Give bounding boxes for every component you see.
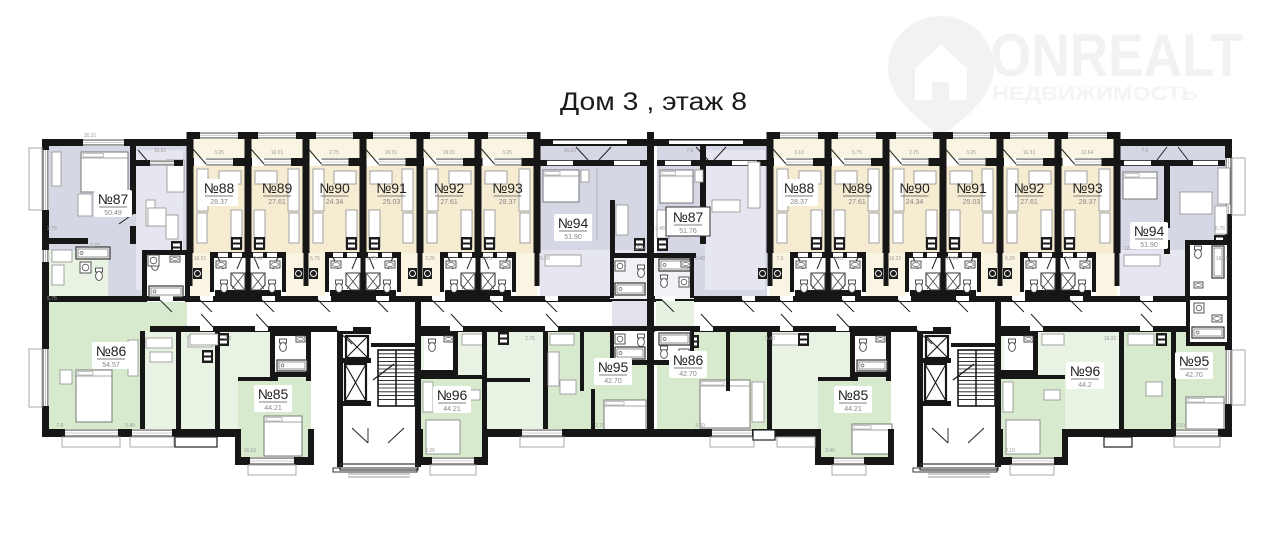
svg-text:№92: №92 <box>1014 180 1045 196</box>
svg-text:№89: №89 <box>842 180 873 196</box>
svg-text:3.25: 3.25 <box>502 150 512 156</box>
svg-text:5.75: 5.75 <box>852 150 862 156</box>
svg-text:3.40: 3.40 <box>125 423 135 429</box>
svg-text:44.2: 44.2 <box>1078 382 1092 389</box>
svg-text:5.28: 5.28 <box>540 256 550 262</box>
svg-text:№96: №96 <box>437 387 468 403</box>
svg-text:№88: №88 <box>784 180 815 196</box>
svg-text:№93: №93 <box>492 180 523 196</box>
svg-text:№91: №91 <box>376 180 407 196</box>
svg-text:27.61: 27.61 <box>268 199 286 206</box>
svg-text:№95: №95 <box>598 359 629 375</box>
svg-text:51.90: 51.90 <box>1140 242 1158 249</box>
svg-text:№87: №87 <box>673 209 704 225</box>
svg-text:2.75: 2.75 <box>367 256 377 262</box>
svg-text:25.03: 25.03 <box>963 199 981 206</box>
svg-text:5.75: 5.75 <box>1215 226 1225 232</box>
svg-text:№93: №93 <box>1072 180 1103 196</box>
svg-text:№94: №94 <box>1134 223 1165 239</box>
svg-text:№91: №91 <box>956 180 987 196</box>
svg-text:27.61: 27.61 <box>848 199 866 206</box>
svg-text:№86: №86 <box>673 352 704 368</box>
svg-text:25.03: 25.03 <box>383 199 401 206</box>
svg-text:54.57: 54.57 <box>102 362 120 369</box>
svg-text:3.10: 3.10 <box>1175 423 1185 429</box>
svg-text:НЕДВИЖИМОСТЬ: НЕДВИЖИМОСТЬ <box>992 84 1198 105</box>
svg-text:7.6: 7.6 <box>1142 148 1149 154</box>
svg-text:№90: №90 <box>899 180 930 196</box>
svg-text:ONREALT: ONREALT <box>990 22 1243 89</box>
svg-text:16.31: 16.31 <box>889 256 902 262</box>
svg-text:28.37: 28.37 <box>499 199 517 206</box>
svg-text:44.21: 44.21 <box>264 405 282 412</box>
svg-text:3.25: 3.25 <box>966 150 976 156</box>
svg-text:16.01: 16.01 <box>244 448 257 454</box>
svg-text:3.40: 3.40 <box>695 423 705 429</box>
svg-text:16.31: 16.31 <box>385 150 398 156</box>
svg-text:2.75: 2.75 <box>90 243 100 249</box>
svg-text:3.10: 3.10 <box>794 150 804 156</box>
svg-text:№86: №86 <box>96 343 127 359</box>
svg-text:16.31: 16.31 <box>1023 150 1036 156</box>
svg-text:№89: №89 <box>262 180 293 196</box>
svg-text:51.76: 51.76 <box>679 228 697 235</box>
svg-text:7.6: 7.6 <box>57 423 64 429</box>
svg-text:№88: №88 <box>204 180 235 196</box>
svg-text:51.90: 51.90 <box>564 234 582 241</box>
svg-text:2.75: 2.75 <box>47 226 57 232</box>
svg-text:№94: №94 <box>558 215 589 231</box>
svg-text:16.31: 16.31 <box>443 150 456 156</box>
svg-text:42.70: 42.70 <box>604 378 622 385</box>
svg-text:16.31: 16.31 <box>1216 256 1229 262</box>
svg-text:44.21: 44.21 <box>443 406 461 413</box>
svg-text:3.40: 3.40 <box>765 336 775 342</box>
svg-text:3.25: 3.25 <box>425 448 435 454</box>
svg-text:3.40: 3.40 <box>695 256 705 262</box>
svg-text:24.34: 24.34 <box>326 199 344 206</box>
svg-text:12.64: 12.64 <box>634 246 647 252</box>
svg-text:2.42: 2.42 <box>253 256 263 262</box>
svg-text:3.25: 3.25 <box>214 150 224 156</box>
svg-text:№95: №95 <box>1179 353 1210 369</box>
svg-text:12.64: 12.64 <box>1081 150 1094 156</box>
svg-text:5.75: 5.75 <box>310 256 320 262</box>
svg-text:16.01: 16.01 <box>564 148 577 154</box>
svg-text:Дом 3 , этаж 8: Дом 3 , этаж 8 <box>560 88 747 116</box>
svg-text:50.49: 50.49 <box>104 210 122 217</box>
svg-text:5.28: 5.28 <box>1005 256 1015 262</box>
svg-text:4.15: 4.15 <box>833 256 843 262</box>
svg-text:5.75: 5.75 <box>47 296 57 302</box>
svg-text:7.6: 7.6 <box>687 148 694 154</box>
svg-text:2.75: 2.75 <box>595 423 605 429</box>
svg-text:24.34: 24.34 <box>906 199 924 206</box>
svg-text:16.31: 16.31 <box>84 133 97 139</box>
svg-text:42.70: 42.70 <box>1185 372 1203 379</box>
svg-text:16.31: 16.31 <box>1104 336 1117 342</box>
svg-text:7.6: 7.6 <box>1065 256 1072 262</box>
svg-text:16.31: 16.31 <box>194 256 207 262</box>
svg-text:2.75: 2.75 <box>329 150 339 156</box>
svg-text:№96: №96 <box>1070 363 1101 379</box>
svg-text:№87: №87 <box>98 191 129 207</box>
svg-text:12.64: 12.64 <box>946 256 959 262</box>
svg-text:3.40: 3.40 <box>825 448 835 454</box>
svg-text:№92: №92 <box>434 180 465 196</box>
svg-text:7.6: 7.6 <box>225 336 232 342</box>
svg-text:3.25: 3.25 <box>425 256 435 262</box>
svg-text:27.61: 27.61 <box>440 199 458 206</box>
svg-text:№90: №90 <box>319 180 350 196</box>
svg-text:28.37: 28.37 <box>210 199 228 206</box>
svg-text:44.21: 44.21 <box>844 406 862 413</box>
svg-text:16.01: 16.01 <box>271 150 284 156</box>
svg-text:№85: №85 <box>838 387 869 403</box>
svg-text:16.01: 16.01 <box>154 148 167 154</box>
svg-text:2.75: 2.75 <box>482 256 492 262</box>
svg-text:№85: №85 <box>258 386 289 402</box>
svg-text:28.37: 28.37 <box>1079 199 1097 206</box>
svg-text:27.61: 27.61 <box>1020 199 1038 206</box>
svg-text:2.75: 2.75 <box>909 150 919 156</box>
svg-text:7.6: 7.6 <box>777 256 784 262</box>
svg-text:28.37: 28.37 <box>790 199 808 206</box>
svg-text:2.75: 2.75 <box>525 336 535 342</box>
svg-text:42.70: 42.70 <box>679 371 697 378</box>
svg-text:3.10: 3.10 <box>1005 448 1015 454</box>
svg-text:3.46: 3.46 <box>655 226 665 232</box>
